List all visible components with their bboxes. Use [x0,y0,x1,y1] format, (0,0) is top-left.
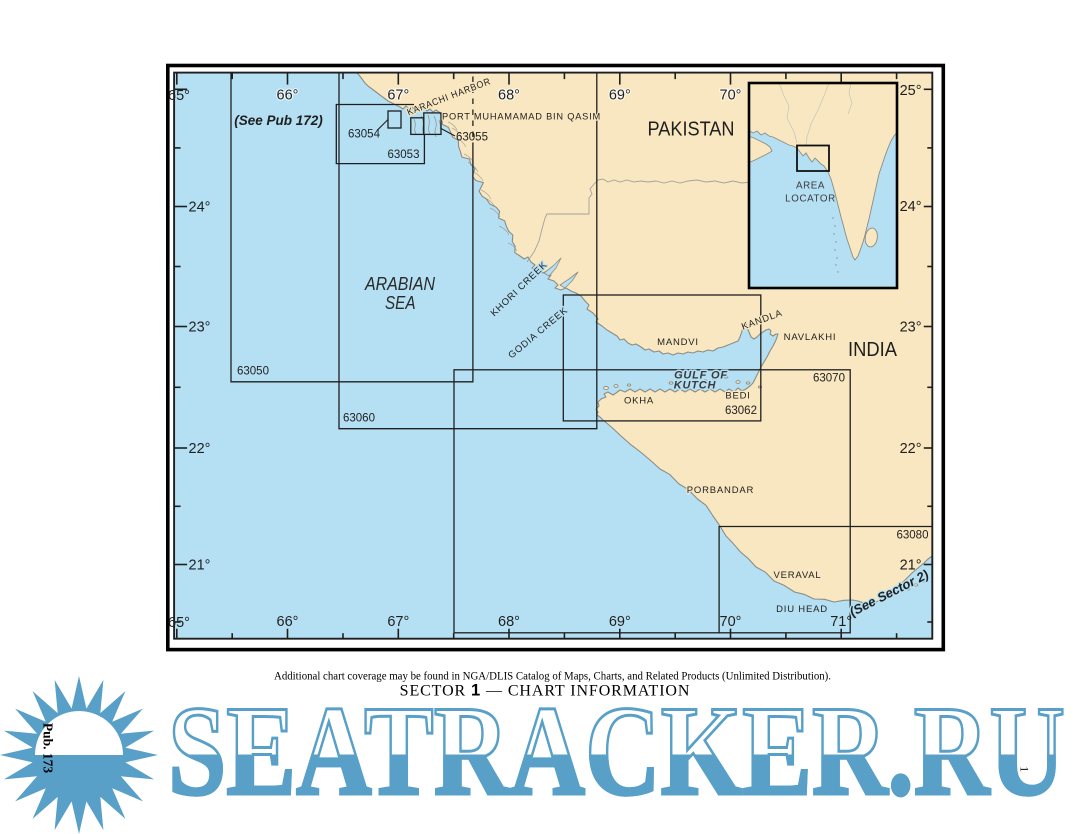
svg-text:67°: 67° [387,614,409,630]
svg-text:65°: 65° [168,88,190,104]
svg-text:23°: 23° [189,320,211,336]
svg-text:OKHA: OKHA [624,396,654,407]
svg-text:63055: 63055 [456,132,488,144]
svg-text:69°: 69° [609,614,631,630]
svg-text:63062: 63062 [725,405,757,417]
svg-text:24°: 24° [189,200,211,216]
svg-text:MANDVI: MANDVI [657,337,699,348]
svg-text:69°: 69° [609,88,631,104]
svg-text:KUTCH: KUTCH [674,380,717,392]
svg-text:63060: 63060 [343,413,375,425]
svg-text:63080: 63080 [897,530,929,542]
svg-text:70°: 70° [720,614,742,630]
svg-text:PAKISTAN: PAKISTAN [648,119,735,141]
svg-text:21°: 21° [189,558,211,574]
svg-text:67°: 67° [387,88,409,104]
svg-text:65°: 65° [168,615,190,631]
svg-text:INDIA: INDIA [848,339,898,361]
svg-text:LOCATOR: LOCATOR [785,194,836,205]
svg-text:66°: 66° [277,614,299,630]
svg-text:PORBANDAR: PORBANDAR [687,485,754,496]
svg-text:NAVLAKHI: NAVLAKHI [784,332,837,343]
svg-text:Pub. 173: Pub. 173 [41,723,56,774]
svg-text:68°: 68° [498,88,520,104]
svg-text:63050: 63050 [237,366,269,378]
svg-text:1: 1 [1018,766,1032,772]
svg-text:68°: 68° [498,614,520,630]
svg-text:24°: 24° [900,199,922,215]
svg-text:71°: 71° [830,614,852,630]
svg-text:70°: 70° [720,88,742,104]
svg-text:AREA: AREA [796,181,825,192]
svg-text:63054: 63054 [348,129,381,141]
svg-text:BEDI: BEDI [725,391,750,402]
svg-text:SEA: SEA [385,293,416,313]
svg-text:(See Pub 172): (See Pub 172) [234,113,323,128]
svg-text:25°: 25° [900,83,922,99]
svg-text:PORT MUHAMAMAD BIN QASIM: PORT MUHAMAMAD BIN QASIM [442,112,601,123]
svg-text:ARABIAN: ARABIAN [364,274,436,294]
svg-text:VERAVAL: VERAVAL [773,570,821,581]
svg-text:63070: 63070 [813,373,845,385]
svg-text:22°: 22° [900,441,922,457]
svg-text:66°: 66° [277,88,299,104]
svg-text:DIU HEAD: DIU HEAD [776,604,828,615]
svg-text:22°: 22° [189,441,211,457]
svg-text:23°: 23° [900,320,922,336]
svg-text:63053: 63053 [388,149,420,161]
